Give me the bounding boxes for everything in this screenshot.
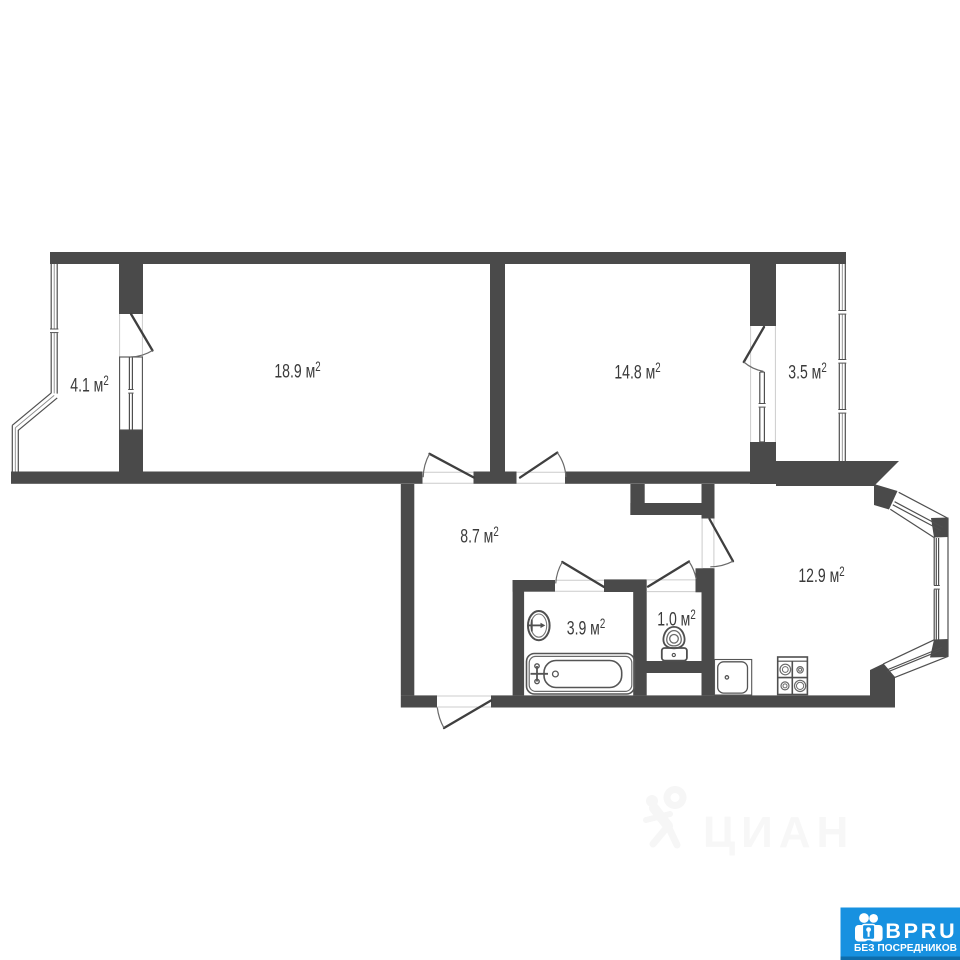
svg-text:18.9 м2: 18.9 м2 (274, 360, 320, 382)
svg-text:БЕЗ ПОСРЕДНИКОВ: БЕЗ ПОСРЕДНИКОВ (854, 943, 957, 954)
svg-text:BPRU: BPRU (885, 919, 957, 943)
svg-text:3.5 м2: 3.5 м2 (788, 361, 826, 383)
svg-text:1.0 м2: 1.0 м2 (657, 608, 695, 630)
svg-text:14.8 м2: 14.8 м2 (614, 361, 660, 383)
svg-text:8.7 м2: 8.7 м2 (460, 525, 498, 547)
svg-text:12.9 м2: 12.9 м2 (798, 564, 844, 586)
svg-text:ЦИАН: ЦИАН (703, 808, 854, 857)
svg-text:4.1 м2: 4.1 м2 (70, 374, 108, 396)
svg-text:3.9 м2: 3.9 м2 (567, 617, 605, 639)
